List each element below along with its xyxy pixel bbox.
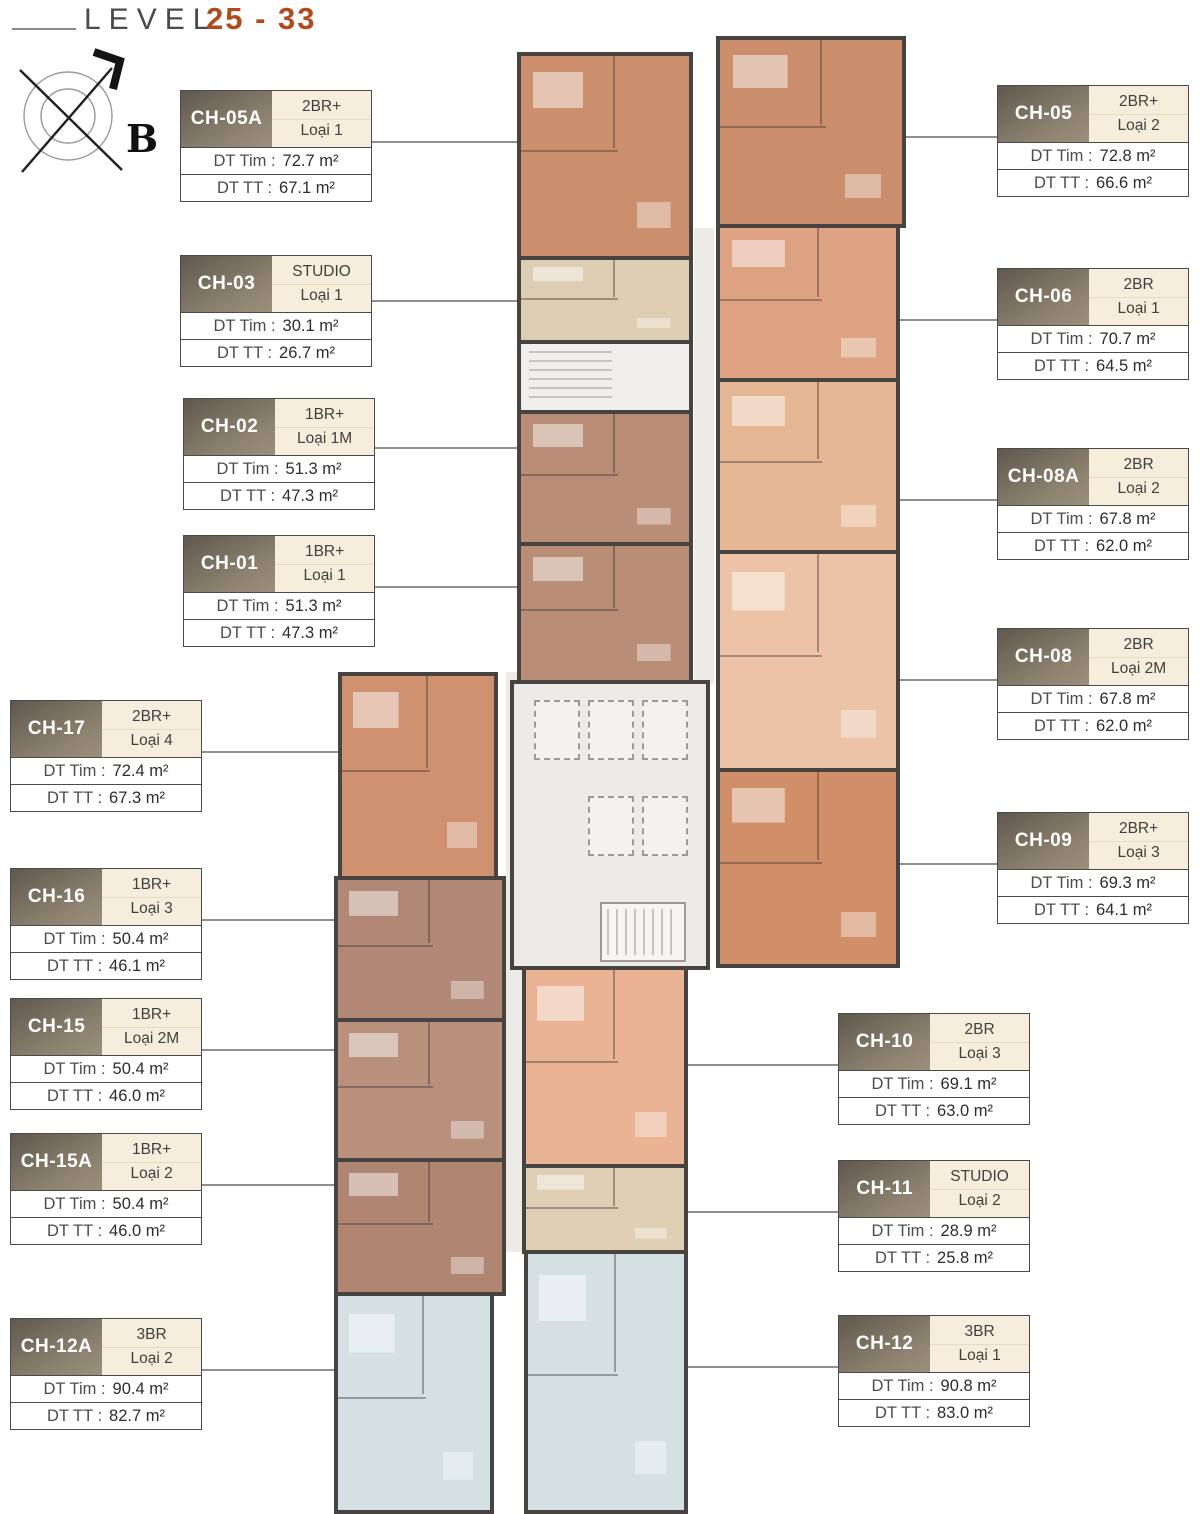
dt-tt-label: DT TT :: [220, 624, 275, 643]
dt-tt-value: 66.6 m²: [1096, 174, 1152, 193]
dt-tt-label: DT TT :: [47, 1087, 102, 1106]
dt-tt-row: DT TT : 82.7 m²: [11, 1402, 201, 1429]
dt-tim-row: DT Tim : 51.3 m²: [184, 456, 374, 482]
dt-tt-row: DT TT : 67.1 m²: [181, 174, 371, 201]
dt-tt-label: DT TT :: [220, 487, 275, 506]
apartment-ch-15a: [334, 1158, 506, 1296]
apartment-ch-10: [522, 966, 688, 1168]
unit-variant: Loại 1: [272, 284, 371, 307]
leader-line: [904, 136, 997, 138]
dt-tim-row: DT Tim : 50.4 m²: [11, 926, 201, 952]
dt-tim-row: DT Tim : 51.3 m²: [184, 593, 374, 619]
unit-header: CH-11 STUDIO Loại 2: [839, 1161, 1029, 1218]
unit-id: CH-16: [11, 869, 102, 925]
apartment-ch-16: [334, 876, 506, 1022]
apartment-ch-08: [716, 550, 900, 772]
dt-tim-value: 90.8 m²: [941, 1377, 997, 1396]
leader-line: [898, 499, 997, 501]
unit-header: CH-10 2BR Loại 3: [839, 1014, 1029, 1071]
apartment-ch-12a: [334, 1292, 494, 1514]
dt-tim-row: DT Tim : 90.4 m²: [11, 1376, 201, 1402]
apartment-ch-12: [524, 1250, 688, 1514]
unit-type-cell: 1BR+ Loại 3: [102, 869, 201, 925]
unit-type-cell: 1BR+ Loại 2: [102, 1134, 201, 1190]
unit-header: CH-05A 2BR+ Loại 1: [181, 91, 371, 148]
dt-tt-label: DT TT :: [1034, 357, 1089, 376]
unit-id: CH-17: [11, 701, 102, 757]
unit-callout-ch-03: CH-03 STUDIO Loại 1 DT Tim : 30.1 m² DT …: [180, 255, 372, 367]
dt-tt-row: DT TT : 47.3 m²: [184, 482, 374, 509]
dt-tim-row: DT Tim : 67.8 m²: [998, 686, 1188, 712]
unit-header: CH-01 1BR+ Loại 1: [184, 536, 374, 593]
unit-header: CH-08A 2BR Loại 2: [998, 449, 1188, 506]
unit-id: CH-12A: [11, 1319, 102, 1375]
dt-tt-value: 46.0 m²: [109, 1222, 165, 1241]
unit-type: 2BR: [1089, 454, 1188, 476]
dt-tt-value: 26.7 m²: [279, 344, 335, 363]
dt-tim-label: DT Tim :: [44, 1060, 106, 1079]
unit-type-cell: 2BR+ Loại 1: [272, 91, 371, 147]
unit-id: CH-15: [11, 999, 102, 1055]
dt-tim-value: 69.3 m²: [1100, 874, 1156, 893]
unit-type: 1BR+: [102, 1139, 201, 1161]
dt-tim-row: DT Tim : 69.3 m²: [998, 870, 1188, 896]
unit-type-cell: 3BR Loại 2: [102, 1319, 201, 1375]
unit-type: 2BR: [930, 1019, 1029, 1041]
unit-type-cell: 1BR+ Loại 1: [275, 536, 374, 592]
unit-variant: Loại 2: [1089, 477, 1188, 500]
unit-type-cell: 2BR Loại 1: [1089, 269, 1188, 325]
dt-tt-value: 64.5 m²: [1096, 357, 1152, 376]
unit-header: CH-03 STUDIO Loại 1: [181, 256, 371, 313]
unit-type: 1BR+: [275, 541, 374, 563]
dt-tt-row: DT TT : 46.0 m²: [11, 1217, 201, 1244]
unit-callout-ch-08: CH-08 2BR Loại 2M DT Tim : 67.8 m² DT TT…: [997, 628, 1189, 740]
dt-tim-value: 30.1 m²: [283, 317, 339, 336]
unit-callout-ch-16: CH-16 1BR+ Loại 3 DT Tim : 50.4 m² DT TT…: [10, 868, 202, 980]
leader-line: [375, 586, 518, 588]
unit-id: CH-06: [998, 269, 1089, 325]
leader-line: [202, 919, 335, 921]
unit-callout-ch-11: CH-11 STUDIO Loại 2 DT Tim : 28.9 m² DT …: [838, 1160, 1030, 1272]
dt-tt-label: DT TT :: [875, 1404, 930, 1423]
stairwell-lower: [600, 902, 686, 962]
elevator-shaft: [642, 700, 688, 760]
unit-type: 1BR+: [102, 874, 201, 896]
unit-id: CH-03: [181, 256, 272, 312]
unit-variant: Loại 3: [102, 897, 201, 920]
unit-header: CH-15 1BR+ Loại 2M: [11, 999, 201, 1056]
unit-type-cell: STUDIO Loại 1: [272, 256, 371, 312]
unit-variant: Loại 3: [930, 1042, 1029, 1065]
leader-line: [202, 1184, 335, 1186]
dt-tt-row: DT TT : 62.0 m²: [998, 532, 1188, 559]
unit-variant: Loại 1: [1089, 297, 1188, 320]
dt-tim-row: DT Tim : 67.8 m²: [998, 506, 1188, 532]
floorplan-page: LEVEL 25 - 33 B: [0, 0, 1200, 1514]
unit-type: 2BR: [1089, 634, 1188, 656]
unit-header: CH-02 1BR+ Loại 1M: [184, 399, 374, 456]
unit-callout-ch-06: CH-06 2BR Loại 1 DT Tim : 70.7 m² DT TT …: [997, 268, 1189, 380]
title-dash: [12, 28, 76, 30]
dt-tt-value: 62.0 m²: [1096, 717, 1152, 736]
dt-tt-row: DT TT : 64.5 m²: [998, 352, 1188, 379]
dt-tim-value: 69.1 m²: [941, 1075, 997, 1094]
leader-line: [686, 1366, 838, 1368]
unit-type: STUDIO: [930, 1166, 1029, 1188]
unit-type: 2BR+: [272, 96, 371, 118]
leader-line: [898, 319, 997, 321]
unit-callout-ch-15a: CH-15A 1BR+ Loại 2 DT Tim : 50.4 m² DT T…: [10, 1133, 202, 1245]
dt-tt-row: DT TT : 46.1 m²: [11, 952, 201, 979]
dt-tim-value: 50.4 m²: [113, 930, 169, 949]
dt-tim-row: DT Tim : 72.8 m²: [998, 143, 1188, 169]
dt-tim-value: 50.4 m²: [113, 1060, 169, 1079]
unit-id: CH-09: [998, 813, 1089, 869]
unit-id: CH-08A: [998, 449, 1089, 505]
unit-variant: Loại 1: [930, 1344, 1029, 1367]
leader-line: [372, 300, 518, 302]
dt-tt-row: DT TT : 63.0 m²: [839, 1097, 1029, 1124]
dt-tt-value: 25.8 m²: [937, 1249, 993, 1268]
apartment-ch-06: [716, 224, 900, 382]
dt-tt-row: DT TT : 25.8 m²: [839, 1244, 1029, 1271]
unit-type-cell: 1BR+ Loại 2M: [102, 999, 201, 1055]
apartment-ch-02: [517, 410, 693, 546]
apartment-ch-03: [517, 256, 693, 344]
unit-type-cell: 2BR Loại 2M: [1089, 629, 1188, 685]
dt-tim-label: DT Tim :: [44, 1195, 106, 1214]
unit-type-cell: STUDIO Loại 2: [930, 1161, 1029, 1217]
unit-id: CH-12: [839, 1316, 930, 1372]
dt-tim-label: DT Tim :: [44, 930, 106, 949]
unit-type-cell: 2BR+ Loại 2: [1089, 86, 1188, 142]
unit-variant: Loại 2: [930, 1189, 1029, 1212]
unit-header: CH-08 2BR Loại 2M: [998, 629, 1188, 686]
dt-tt-value: 46.0 m²: [109, 1087, 165, 1106]
unit-type: 1BR+: [102, 1004, 201, 1026]
dt-tim-label: DT Tim :: [1031, 147, 1093, 166]
dt-tt-value: 62.0 m²: [1096, 537, 1152, 556]
apartment-ch-09: [716, 768, 900, 968]
unit-header: CH-09 2BR+ Loại 3: [998, 813, 1188, 870]
dt-tt-value: 64.1 m²: [1096, 901, 1152, 920]
apartment-ch-11: [522, 1164, 688, 1254]
dt-tt-value: 63.0 m²: [937, 1102, 993, 1121]
unit-type: 2BR+: [1089, 91, 1188, 113]
dt-tim-row: DT Tim : 70.7 m²: [998, 326, 1188, 352]
dt-tt-value: 67.1 m²: [279, 179, 335, 198]
unit-id: CH-01: [184, 536, 275, 592]
stairwell-upper: [517, 340, 693, 414]
unit-type: 3BR: [102, 1324, 201, 1346]
unit-variant: Loại 4: [102, 729, 201, 752]
dt-tt-value: 83.0 m²: [937, 1404, 993, 1423]
unit-callout-ch-17: CH-17 2BR+ Loại 4 DT Tim : 72.4 m² DT TT…: [10, 700, 202, 812]
leader-line: [372, 141, 518, 143]
unit-variant: Loại 1: [275, 564, 374, 587]
dt-tim-value: 28.9 m²: [941, 1222, 997, 1241]
dt-tt-value: 82.7 m²: [109, 1407, 165, 1426]
leader-line: [686, 1064, 838, 1066]
dt-tt-row: DT TT : 46.0 m²: [11, 1082, 201, 1109]
unit-callout-ch-05: CH-05 2BR+ Loại 2 DT Tim : 72.8 m² DT TT…: [997, 85, 1189, 197]
unit-type: STUDIO: [272, 261, 371, 283]
dt-tt-label: DT TT :: [47, 789, 102, 808]
leader-line: [375, 447, 518, 449]
unit-id: CH-15A: [11, 1134, 102, 1190]
leader-line: [202, 751, 338, 753]
unit-variant: Loại 1M: [275, 427, 374, 450]
unit-callout-ch-02: CH-02 1BR+ Loại 1M DT Tim : 51.3 m² DT T…: [183, 398, 375, 510]
dt-tt-label: DT TT :: [875, 1249, 930, 1268]
unit-header: CH-17 2BR+ Loại 4: [11, 701, 201, 758]
dt-tim-row: DT Tim : 50.4 m²: [11, 1056, 201, 1082]
dt-tt-row: DT TT : 83.0 m²: [839, 1399, 1029, 1426]
dt-tim-label: DT Tim :: [44, 762, 106, 781]
unit-variant: Loại 3: [1089, 841, 1188, 864]
dt-tim-row: DT Tim : 69.1 m²: [839, 1071, 1029, 1097]
dt-tim-label: DT Tim :: [1031, 510, 1093, 529]
dt-tim-value: 67.8 m²: [1100, 510, 1156, 529]
unit-callout-ch-01: CH-01 1BR+ Loại 1 DT Tim : 51.3 m² DT TT…: [183, 535, 375, 647]
compass-direction-label: B: [126, 116, 158, 161]
unit-header: CH-05 2BR+ Loại 2: [998, 86, 1188, 143]
dt-tim-row: DT Tim : 28.9 m²: [839, 1218, 1029, 1244]
dt-tim-row: DT Tim : 50.4 m²: [11, 1191, 201, 1217]
unit-variant: Loại 2: [1089, 114, 1188, 137]
unit-header: CH-06 2BR Loại 1: [998, 269, 1188, 326]
dt-tt-label: DT TT :: [217, 344, 272, 363]
unit-id: CH-11: [839, 1161, 930, 1217]
dt-tt-label: DT TT :: [47, 1407, 102, 1426]
dt-tim-value: 90.4 m²: [113, 1380, 169, 1399]
unit-callout-ch-08a: CH-08A 2BR Loại 2 DT Tim : 67.8 m² DT TT…: [997, 448, 1189, 560]
elevator-shaft: [588, 700, 634, 760]
unit-callout-ch-09: CH-09 2BR+ Loại 3 DT Tim : 69.3 m² DT TT…: [997, 812, 1189, 924]
dt-tim-value: 51.3 m²: [286, 597, 342, 616]
page-title-range: 25 - 33: [206, 1, 317, 37]
unit-header: CH-16 1BR+ Loại 3: [11, 869, 201, 926]
dt-tim-label: DT Tim :: [44, 1380, 106, 1399]
dt-tt-label: DT TT :: [875, 1102, 930, 1121]
unit-variant: Loại 2M: [1089, 657, 1188, 680]
unit-type-cell: 2BR+ Loại 3: [1089, 813, 1188, 869]
dt-tim-label: DT Tim :: [1031, 690, 1093, 709]
dt-tt-label: DT TT :: [1034, 537, 1089, 556]
dt-tt-label: DT TT :: [47, 957, 102, 976]
unit-type: 3BR: [930, 1321, 1029, 1343]
dt-tt-row: DT TT : 26.7 m²: [181, 339, 371, 366]
dt-tim-value: 70.7 m²: [1100, 330, 1156, 349]
unit-callout-ch-05a: CH-05A 2BR+ Loại 1 DT Tim : 72.7 m² DT T…: [180, 90, 372, 202]
leader-line: [686, 1211, 838, 1213]
unit-type-cell: 3BR Loại 1: [930, 1316, 1029, 1372]
dt-tt-row: DT TT : 47.3 m²: [184, 619, 374, 646]
unit-type-cell: 2BR Loại 2: [1089, 449, 1188, 505]
unit-header: CH-15A 1BR+ Loại 2: [11, 1134, 201, 1191]
dt-tim-label: DT Tim :: [1031, 874, 1093, 893]
apartment-ch-08a: [716, 378, 900, 554]
dt-tim-value: 51.3 m²: [286, 460, 342, 479]
dt-tt-label: DT TT :: [217, 179, 272, 198]
dt-tim-row: DT Tim : 72.4 m²: [11, 758, 201, 784]
dt-tim-row: DT Tim : 30.1 m²: [181, 313, 371, 339]
leader-line: [202, 1369, 335, 1371]
unit-id: CH-05: [998, 86, 1089, 142]
elevator-shaft: [588, 796, 634, 856]
unit-id: CH-10: [839, 1014, 930, 1070]
leader-line: [202, 1049, 335, 1051]
dt-tt-row: DT TT : 62.0 m²: [998, 712, 1188, 739]
dt-tim-value: 72.7 m²: [283, 152, 339, 171]
compass-icon: B: [10, 44, 160, 179]
unit-callout-ch-15: CH-15 1BR+ Loại 2M DT Tim : 50.4 m² DT T…: [10, 998, 202, 1110]
unit-type-cell: 2BR Loại 3: [930, 1014, 1029, 1070]
dt-tim-label: DT Tim :: [217, 460, 279, 479]
dt-tt-value: 46.1 m²: [109, 957, 165, 976]
unit-callout-ch-12a: CH-12A 3BR Loại 2 DT Tim : 90.4 m² DT TT…: [10, 1318, 202, 1430]
apartment-ch-17: [338, 672, 498, 880]
dt-tt-label: DT TT :: [47, 1222, 102, 1241]
unit-id: CH-05A: [181, 91, 272, 147]
dt-tt-value: 67.3 m²: [109, 789, 165, 808]
dt-tim-row: DT Tim : 90.8 m²: [839, 1373, 1029, 1399]
dt-tt-value: 47.3 m²: [282, 487, 338, 506]
elevator-shaft: [642, 796, 688, 856]
dt-tim-label: DT Tim :: [1031, 330, 1093, 349]
dt-tt-value: 47.3 m²: [282, 624, 338, 643]
dt-tim-value: 50.4 m²: [113, 1195, 169, 1214]
dt-tt-row: DT TT : 67.3 m²: [11, 784, 201, 811]
unit-id: CH-08: [998, 629, 1089, 685]
dt-tim-label: DT Tim :: [217, 597, 279, 616]
unit-header: CH-12 3BR Loại 1: [839, 1316, 1029, 1373]
unit-callout-ch-10: CH-10 2BR Loại 3 DT Tim : 69.1 m² DT TT …: [838, 1013, 1030, 1125]
unit-type-cell: 1BR+ Loại 1M: [275, 399, 374, 455]
unit-type: 1BR+: [275, 404, 374, 426]
apartment-ch-05: [716, 36, 906, 228]
leader-line: [898, 863, 997, 865]
unit-type: 2BR: [1089, 274, 1188, 296]
dt-tt-label: DT TT :: [1034, 901, 1089, 920]
apartment-ch-15: [334, 1018, 506, 1162]
dt-tim-label: DT Tim :: [214, 317, 276, 336]
unit-header: CH-12A 3BR Loại 2: [11, 1319, 201, 1376]
unit-type: 2BR+: [1089, 818, 1188, 840]
page-title-level: LEVEL: [84, 3, 217, 37]
dt-tim-label: DT Tim :: [872, 1222, 934, 1241]
unit-type: 2BR+: [102, 706, 201, 728]
unit-variant: Loại 2M: [102, 1027, 201, 1050]
dt-tim-row: DT Tim : 72.7 m²: [181, 148, 371, 174]
unit-callout-ch-12: CH-12 3BR Loại 1 DT Tim : 90.8 m² DT TT …: [838, 1315, 1030, 1427]
dt-tim-label: DT Tim :: [214, 152, 276, 171]
dt-tt-row: DT TT : 66.6 m²: [998, 169, 1188, 196]
unit-variant: Loại 1: [272, 119, 371, 142]
unit-id: CH-02: [184, 399, 275, 455]
unit-variant: Loại 2: [102, 1162, 201, 1185]
dt-tim-label: DT Tim :: [872, 1075, 934, 1094]
elevator-shaft: [534, 700, 580, 760]
apartment-ch-05a: [517, 52, 693, 260]
apartment-ch-01: [517, 542, 693, 684]
dt-tim-value: 67.8 m²: [1100, 690, 1156, 709]
dt-tt-row: DT TT : 64.1 m²: [998, 896, 1188, 923]
dt-tt-label: DT TT :: [1034, 717, 1089, 736]
leader-line: [898, 679, 997, 681]
dt-tim-label: DT Tim :: [872, 1377, 934, 1396]
unit-variant: Loại 2: [102, 1347, 201, 1370]
dt-tim-value: 72.8 m²: [1100, 147, 1156, 166]
corridor: [694, 228, 714, 684]
dt-tt-label: DT TT :: [1034, 174, 1089, 193]
unit-type-cell: 2BR+ Loại 4: [102, 701, 201, 757]
dt-tim-value: 72.4 m²: [113, 762, 169, 781]
